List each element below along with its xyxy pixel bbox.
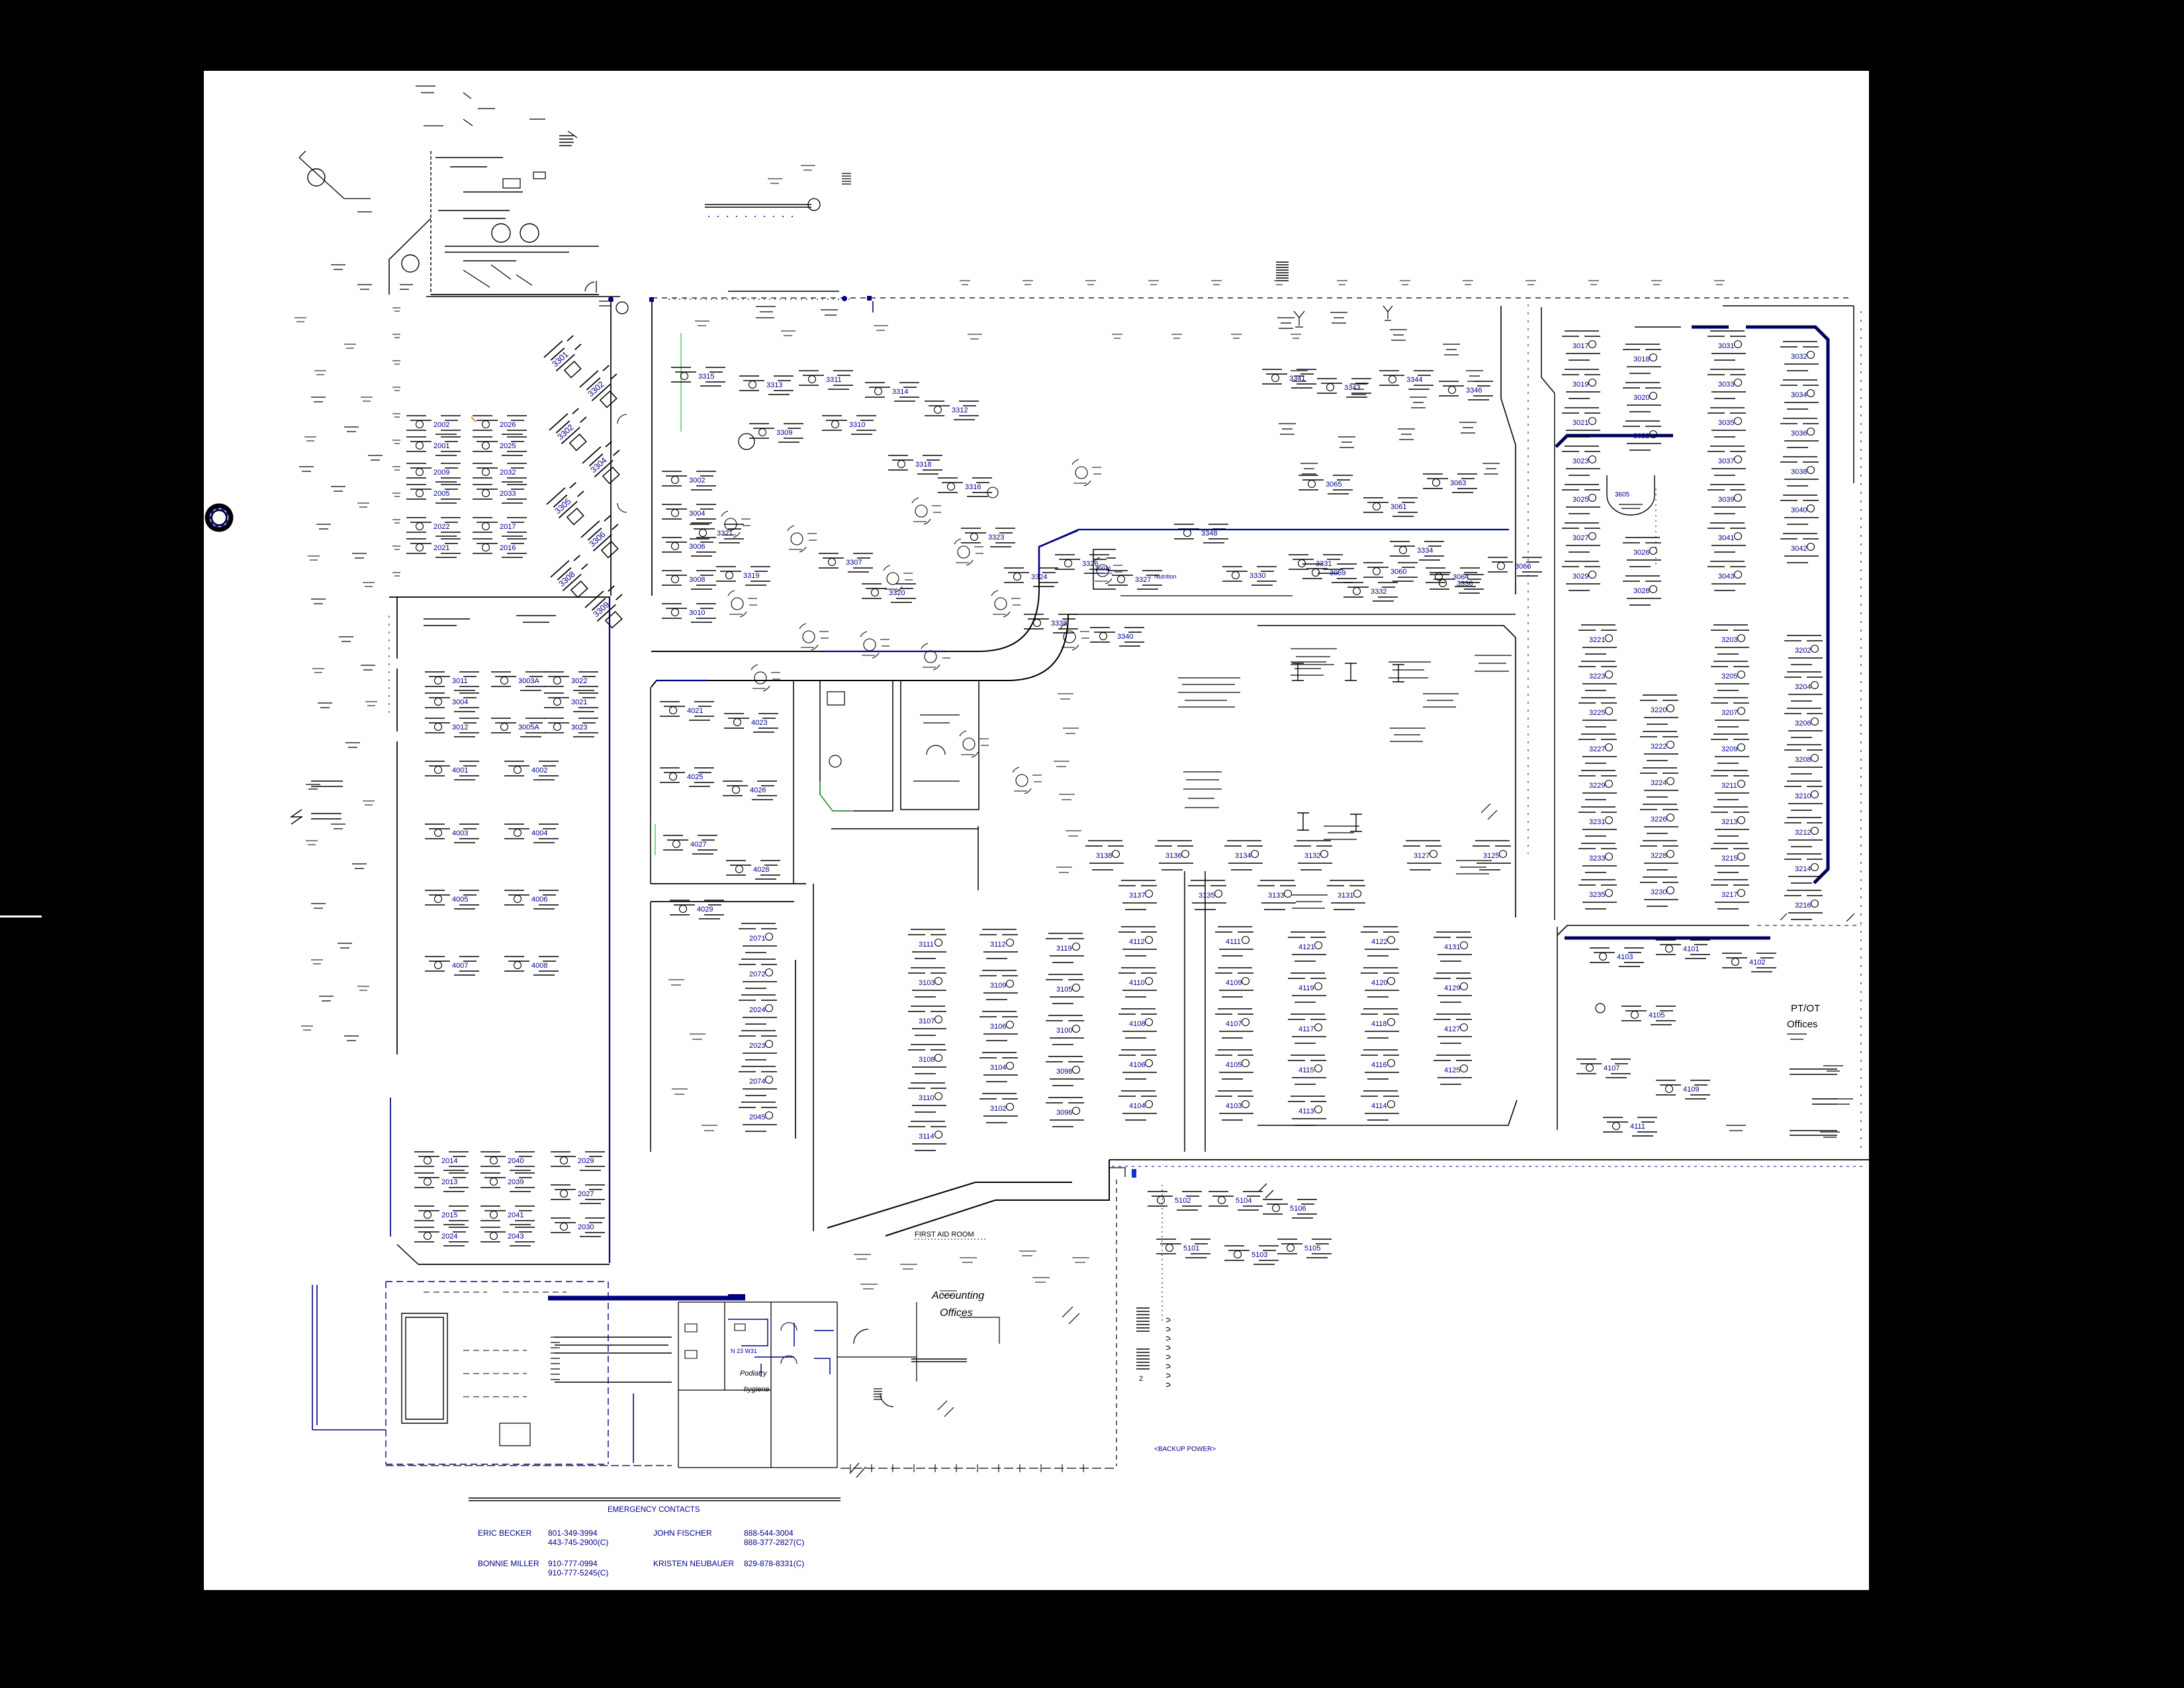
svg-text:829-878-8331(C): 829-878-8331(C) bbox=[744, 1559, 804, 1568]
svg-text:Podiatry: Podiatry bbox=[740, 1370, 768, 1378]
svg-text:3204: 3204 bbox=[1795, 683, 1811, 691]
svg-text:3042: 3042 bbox=[1791, 545, 1807, 553]
svg-text:3133: 3133 bbox=[1268, 892, 1284, 900]
svg-text:3346: 3346 bbox=[1466, 387, 1482, 395]
svg-text:888-544-3004: 888-544-3004 bbox=[744, 1528, 794, 1538]
svg-text:4114: 4114 bbox=[1371, 1102, 1387, 1110]
svg-text:3225: 3225 bbox=[1589, 709, 1605, 717]
svg-text:3230: 3230 bbox=[1651, 888, 1666, 896]
svg-text:EMERGENCY CONTACTS: EMERGENCY CONTACTS bbox=[608, 1506, 700, 1514]
svg-text:3036: 3036 bbox=[1791, 430, 1807, 438]
svg-text:3021: 3021 bbox=[571, 698, 587, 706]
svg-text:3119: 3119 bbox=[1056, 945, 1072, 953]
svg-text:3132: 3132 bbox=[1304, 852, 1320, 860]
svg-text:3125: 3125 bbox=[1483, 852, 1499, 860]
svg-text:910-777-0994: 910-777-0994 bbox=[548, 1559, 598, 1568]
svg-text:3114: 3114 bbox=[919, 1133, 934, 1141]
svg-text:Nutrition: Nutrition bbox=[1154, 573, 1177, 580]
svg-text:3004: 3004 bbox=[452, 698, 468, 706]
svg-text:3112: 3112 bbox=[990, 941, 1006, 949]
svg-text:3309: 3309 bbox=[776, 429, 792, 437]
svg-text:hygiene: hygiene bbox=[744, 1385, 770, 1393]
svg-text:4110: 4110 bbox=[1129, 979, 1145, 987]
svg-text:3023: 3023 bbox=[1572, 457, 1588, 465]
svg-text:2074: 2074 bbox=[749, 1078, 765, 1086]
svg-text:3214: 3214 bbox=[1795, 865, 1811, 873]
svg-text:3022: 3022 bbox=[571, 677, 587, 685]
svg-text:3008: 3008 bbox=[689, 576, 705, 584]
svg-text:4131: 4131 bbox=[1444, 943, 1460, 951]
svg-text:3136: 3136 bbox=[1165, 852, 1181, 860]
svg-text:KRISTEN NEUBAUER: KRISTEN NEUBAUER bbox=[653, 1559, 734, 1568]
svg-text:2024: 2024 bbox=[749, 1006, 765, 1014]
svg-text:3323: 3323 bbox=[988, 534, 1004, 541]
svg-text:5105: 5105 bbox=[1304, 1244, 1320, 1252]
svg-text:3206: 3206 bbox=[1795, 720, 1811, 727]
svg-text:20011: 20011 bbox=[1095, 565, 1111, 572]
svg-text:3344: 3344 bbox=[1406, 376, 1422, 384]
svg-text:4026: 4026 bbox=[750, 786, 766, 794]
svg-text:2039: 2039 bbox=[508, 1178, 523, 1186]
svg-text:2033: 2033 bbox=[500, 490, 516, 498]
svg-text:3321: 3321 bbox=[717, 530, 733, 538]
svg-text:2014: 2014 bbox=[441, 1157, 457, 1165]
svg-text:3227: 3227 bbox=[1589, 745, 1605, 753]
svg-text:3105: 3105 bbox=[1056, 986, 1072, 994]
svg-text:4111: 4111 bbox=[1226, 938, 1241, 946]
svg-text:4021: 4021 bbox=[687, 707, 703, 715]
svg-text:3131: 3131 bbox=[1338, 892, 1353, 900]
svg-text:3004: 3004 bbox=[689, 510, 705, 518]
svg-text:3203: 3203 bbox=[1721, 636, 1737, 644]
svg-text:2009: 2009 bbox=[433, 469, 449, 477]
svg-text:Offices: Offices bbox=[1787, 1019, 1817, 1030]
svg-text:2013: 2013 bbox=[441, 1178, 457, 1186]
svg-text:4106: 4106 bbox=[1129, 1061, 1145, 1069]
svg-text:JOHN FISCHER: JOHN FISCHER bbox=[653, 1528, 712, 1538]
svg-text:4104: 4104 bbox=[1129, 1102, 1145, 1110]
svg-text:4027: 4027 bbox=[690, 841, 706, 849]
svg-text:3233: 3233 bbox=[1589, 855, 1605, 863]
svg-text:4028: 4028 bbox=[753, 866, 769, 874]
svg-text:3224: 3224 bbox=[1651, 779, 1666, 787]
svg-text:3031: 3031 bbox=[1718, 342, 1734, 350]
svg-text:3059: 3059 bbox=[1330, 569, 1345, 577]
svg-text:3019: 3019 bbox=[1572, 381, 1588, 389]
svg-text:ERIC BECKER: ERIC BECKER bbox=[478, 1528, 532, 1538]
svg-text:3010: 3010 bbox=[689, 609, 705, 617]
svg-text:888-377-2827(C): 888-377-2827(C) bbox=[744, 1538, 804, 1547]
svg-text:3137: 3137 bbox=[1129, 892, 1145, 900]
svg-text:4118: 4118 bbox=[1371, 1020, 1387, 1028]
svg-text:PT/OT: PT/OT bbox=[1791, 1003, 1820, 1014]
svg-text:3228: 3228 bbox=[1651, 852, 1666, 860]
svg-text:N 23 W31: N 23 W31 bbox=[731, 1348, 757, 1354]
svg-text:3211: 3211 bbox=[1721, 782, 1737, 790]
svg-text:3338: 3338 bbox=[1051, 620, 1067, 628]
svg-text:3213: 3213 bbox=[1721, 818, 1737, 826]
svg-text:4003: 4003 bbox=[452, 829, 468, 837]
svg-text:3138: 3138 bbox=[1096, 852, 1112, 860]
svg-text:3605: 3605 bbox=[1615, 491, 1630, 498]
svg-text:3006: 3006 bbox=[689, 543, 705, 551]
svg-text:3319: 3319 bbox=[743, 572, 759, 580]
svg-text:4025: 4025 bbox=[687, 773, 703, 781]
svg-text:4127: 4127 bbox=[1444, 1025, 1460, 1033]
svg-text:4107: 4107 bbox=[1226, 1020, 1242, 1028]
svg-text:3100: 3100 bbox=[1056, 1027, 1072, 1035]
svg-text:2015: 2015 bbox=[441, 1211, 457, 1219]
svg-text:3222: 3222 bbox=[1651, 743, 1666, 751]
svg-text:3011: 3011 bbox=[452, 677, 468, 685]
svg-text:3210: 3210 bbox=[1795, 792, 1811, 800]
svg-text:3002: 3002 bbox=[689, 477, 705, 485]
svg-text:3215: 3215 bbox=[1721, 855, 1737, 863]
svg-text:3330: 3330 bbox=[1250, 572, 1265, 580]
svg-text:BONNIE MILLER: BONNIE MILLER bbox=[478, 1559, 539, 1568]
svg-text:3134: 3134 bbox=[1235, 852, 1251, 860]
svg-text:3226: 3226 bbox=[1651, 816, 1666, 823]
svg-text:3111: 3111 bbox=[919, 941, 934, 949]
svg-text:3064: 3064 bbox=[1453, 573, 1469, 581]
svg-text:3307: 3307 bbox=[846, 559, 862, 567]
svg-text:3098: 3098 bbox=[1056, 1068, 1072, 1076]
svg-text:3221: 3221 bbox=[1589, 636, 1605, 644]
svg-text:4103: 4103 bbox=[1617, 953, 1633, 961]
svg-text:4108: 4108 bbox=[1129, 1020, 1145, 1028]
svg-text:4109: 4109 bbox=[1683, 1086, 1699, 1094]
svg-text:4107: 4107 bbox=[1604, 1064, 1619, 1072]
svg-text:3334: 3334 bbox=[1417, 547, 1433, 555]
svg-text:910-777-5245(C): 910-777-5245(C) bbox=[548, 1568, 608, 1577]
svg-text:5104: 5104 bbox=[1236, 1197, 1251, 1205]
svg-text:3096: 3096 bbox=[1056, 1109, 1072, 1117]
svg-text:2029: 2029 bbox=[578, 1157, 594, 1165]
svg-text:4002: 4002 bbox=[531, 767, 547, 774]
svg-text:3202: 3202 bbox=[1795, 647, 1811, 655]
svg-text:4007: 4007 bbox=[452, 962, 468, 970]
svg-text:3316: 3316 bbox=[965, 483, 981, 491]
svg-text:3038: 3038 bbox=[1791, 468, 1807, 476]
svg-text:3028: 3028 bbox=[1633, 587, 1649, 595]
svg-text:2025: 2025 bbox=[500, 442, 516, 450]
svg-text:2027: 2027 bbox=[578, 1190, 594, 1198]
svg-text:4120: 4120 bbox=[1371, 979, 1387, 987]
svg-text:3021: 3021 bbox=[1572, 419, 1588, 427]
svg-text:3029: 3029 bbox=[1572, 573, 1588, 581]
svg-text:2030: 2030 bbox=[578, 1223, 594, 1231]
svg-text:4004: 4004 bbox=[531, 829, 547, 837]
svg-text:2021: 2021 bbox=[433, 544, 449, 552]
svg-text:2045: 2045 bbox=[749, 1113, 765, 1121]
svg-text:4005: 4005 bbox=[452, 896, 468, 904]
svg-text:3320: 3320 bbox=[889, 589, 905, 597]
svg-text:3060: 3060 bbox=[1390, 568, 1406, 576]
svg-text:4008: 4008 bbox=[531, 962, 547, 970]
svg-text:3107: 3107 bbox=[919, 1017, 934, 1025]
svg-text:4113: 4113 bbox=[1298, 1107, 1314, 1115]
svg-text:2002: 2002 bbox=[433, 421, 449, 429]
svg-text:3207: 3207 bbox=[1721, 709, 1737, 717]
svg-text:3061: 3061 bbox=[1390, 503, 1406, 511]
svg-text:3018: 3018 bbox=[1633, 355, 1649, 363]
svg-text:3318: 3318 bbox=[915, 461, 931, 469]
svg-text:3327: 3327 bbox=[1135, 576, 1151, 584]
svg-text:3310: 3310 bbox=[849, 421, 865, 429]
svg-text:3065: 3065 bbox=[1326, 481, 1342, 489]
svg-text:3012: 3012 bbox=[452, 724, 468, 731]
svg-text:4111: 4111 bbox=[1630, 1123, 1645, 1131]
svg-text:4103: 4103 bbox=[1226, 1102, 1242, 1110]
svg-text:<BACKUP POWER>: <BACKUP POWER> bbox=[1154, 1446, 1216, 1453]
svg-text:3315: 3315 bbox=[698, 373, 714, 381]
svg-text:3348: 3348 bbox=[1201, 530, 1217, 538]
svg-text:3135: 3135 bbox=[1199, 892, 1214, 900]
svg-text:4023: 4023 bbox=[751, 719, 767, 727]
svg-text:4115: 4115 bbox=[1298, 1066, 1314, 1074]
svg-text:4006: 4006 bbox=[531, 896, 547, 904]
svg-text:3106: 3106 bbox=[990, 1023, 1006, 1031]
svg-text:3017: 3017 bbox=[1572, 342, 1588, 350]
svg-text:3205: 3205 bbox=[1721, 673, 1737, 680]
svg-text:4029: 4029 bbox=[697, 906, 713, 914]
svg-text:3005A: 3005A bbox=[518, 724, 539, 731]
svg-text:3022: 3022 bbox=[1633, 432, 1649, 440]
svg-text:3235: 3235 bbox=[1589, 891, 1605, 899]
svg-text:3217: 3217 bbox=[1721, 891, 1737, 899]
svg-text:5103: 5103 bbox=[1251, 1251, 1267, 1259]
svg-text:3043: 3043 bbox=[1718, 573, 1734, 581]
svg-text:3332: 3332 bbox=[1371, 588, 1387, 596]
svg-text:4117: 4117 bbox=[1298, 1025, 1314, 1033]
svg-text:2026: 2026 bbox=[500, 421, 516, 429]
svg-text:3229: 3229 bbox=[1589, 782, 1605, 790]
svg-text:3108: 3108 bbox=[919, 1056, 934, 1064]
svg-text:2032: 2032 bbox=[500, 469, 516, 477]
svg-text:4102: 4102 bbox=[1749, 959, 1765, 966]
svg-text:3034: 3034 bbox=[1791, 391, 1807, 399]
svg-text:4109: 4109 bbox=[1226, 979, 1242, 987]
svg-text:3026: 3026 bbox=[1633, 549, 1649, 557]
svg-text:3037: 3037 bbox=[1718, 457, 1734, 465]
svg-text:4119: 4119 bbox=[1298, 984, 1314, 992]
svg-text:3312: 3312 bbox=[952, 406, 968, 414]
svg-text:4129: 4129 bbox=[1444, 984, 1460, 992]
svg-text:Accounting: Accounting bbox=[931, 1290, 984, 1301]
svg-text:2071: 2071 bbox=[749, 935, 765, 943]
svg-text:4112: 4112 bbox=[1129, 938, 1145, 946]
svg-text:2017: 2017 bbox=[500, 523, 516, 531]
svg-text:2023: 2023 bbox=[749, 1042, 765, 1050]
svg-text:3220: 3220 bbox=[1651, 706, 1666, 714]
svg-text:4001: 4001 bbox=[452, 767, 468, 774]
svg-text:3032: 3032 bbox=[1791, 353, 1807, 361]
svg-text:4101: 4101 bbox=[1683, 945, 1699, 953]
svg-text:3340: 3340 bbox=[1117, 633, 1133, 641]
svg-text:3027: 3027 bbox=[1572, 534, 1588, 542]
svg-text:3035: 3035 bbox=[1718, 419, 1734, 427]
svg-text:3003A: 3003A bbox=[518, 677, 539, 685]
svg-text:3066: 3066 bbox=[1515, 563, 1531, 571]
svg-text:3102: 3102 bbox=[990, 1105, 1006, 1113]
svg-text:3209: 3209 bbox=[1721, 745, 1737, 753]
svg-text:3343: 3343 bbox=[1344, 384, 1360, 392]
svg-text:3040: 3040 bbox=[1791, 506, 1807, 514]
svg-text:3103: 3103 bbox=[919, 979, 934, 987]
svg-text:3063: 3063 bbox=[1450, 479, 1466, 487]
svg-text:3208: 3208 bbox=[1795, 756, 1811, 764]
svg-text:2040: 2040 bbox=[508, 1157, 523, 1165]
svg-text:4121: 4121 bbox=[1298, 943, 1314, 951]
svg-text:4122: 4122 bbox=[1371, 938, 1387, 946]
svg-text:3109: 3109 bbox=[990, 982, 1006, 990]
svg-text:3020: 3020 bbox=[1633, 394, 1649, 402]
svg-text:2043: 2043 bbox=[508, 1233, 523, 1241]
svg-text:3314: 3314 bbox=[892, 388, 908, 396]
svg-text:2016: 2016 bbox=[500, 544, 516, 552]
svg-text:3216: 3216 bbox=[1795, 902, 1811, 910]
svg-text:4125: 4125 bbox=[1444, 1066, 1460, 1074]
svg-text:FIRST AID ROOM: FIRST AID ROOM bbox=[915, 1231, 974, 1239]
svg-text:3023: 3023 bbox=[571, 724, 587, 731]
svg-text:3223: 3223 bbox=[1589, 673, 1605, 680]
svg-text:4105: 4105 bbox=[1649, 1011, 1664, 1019]
svg-text:3110: 3110 bbox=[919, 1094, 934, 1102]
svg-text:2: 2 bbox=[1139, 1375, 1143, 1383]
svg-text:3212: 3212 bbox=[1795, 829, 1811, 837]
svg-text:3231: 3231 bbox=[1589, 818, 1605, 826]
svg-text:5106: 5106 bbox=[1290, 1205, 1306, 1213]
svg-text:2041: 2041 bbox=[508, 1211, 523, 1219]
svg-text:5102: 5102 bbox=[1175, 1197, 1191, 1205]
svg-text:2024: 2024 bbox=[441, 1233, 457, 1241]
svg-text:3039: 3039 bbox=[1718, 496, 1734, 504]
svg-text:3025: 3025 bbox=[1572, 496, 1588, 504]
svg-text:2072: 2072 bbox=[749, 970, 765, 978]
svg-text:5101: 5101 bbox=[1183, 1244, 1199, 1252]
svg-text:3313: 3313 bbox=[766, 381, 782, 389]
svg-text:3041: 3041 bbox=[1718, 534, 1734, 542]
svg-text:4116: 4116 bbox=[1371, 1061, 1387, 1069]
svg-text:443-745-2900(C): 443-745-2900(C) bbox=[548, 1538, 608, 1547]
svg-text:2005: 2005 bbox=[433, 490, 449, 498]
svg-text:3033: 3033 bbox=[1718, 381, 1734, 389]
svg-text:2022: 2022 bbox=[433, 523, 449, 531]
svg-text:4105: 4105 bbox=[1226, 1061, 1242, 1069]
svg-text:2001: 2001 bbox=[433, 442, 449, 450]
svg-text:3311: 3311 bbox=[826, 376, 842, 384]
svg-text:801-349-3994: 801-349-3994 bbox=[548, 1528, 598, 1538]
svg-text:3104: 3104 bbox=[990, 1064, 1006, 1072]
svg-text:3127: 3127 bbox=[1414, 852, 1430, 860]
